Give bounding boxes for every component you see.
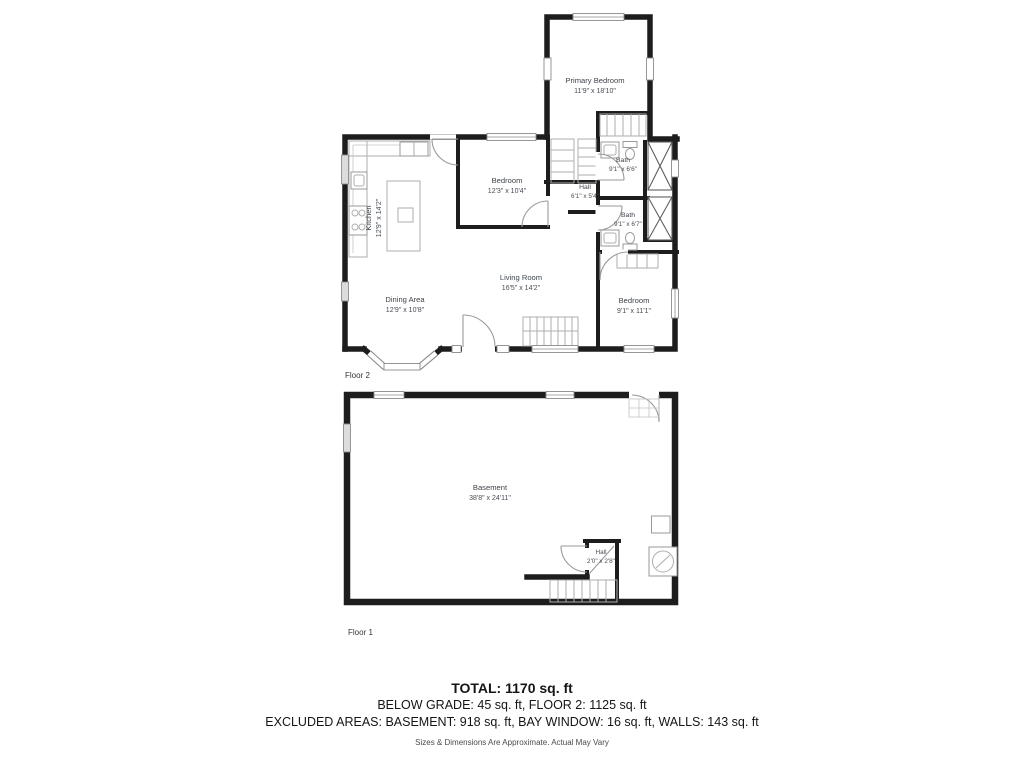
floorplan-drawing: Primary Bedroom 11'9" x 18'10" Bedroom 1… [0, 0, 1024, 768]
kitchen-counter [349, 141, 430, 257]
utility-panel [652, 516, 671, 533]
area-summary: TOTAL: 1170 sq. ft BELOW GRADE: 45 sq. f… [0, 679, 1024, 747]
room-dims-primary-bedroom: 11'9" x 18'10" [574, 88, 616, 95]
room-dims-hall: 6'1" x 5'4" [571, 193, 599, 200]
kitchen-sink [351, 172, 367, 189]
room-label-living: Living Room [500, 273, 542, 282]
room-dims-dining: 12'9" x 10'8" [386, 307, 425, 314]
water-heater [649, 547, 677, 576]
floor2-stairs-main [523, 317, 578, 346]
room-label-basement-hall: Hall [595, 549, 606, 556]
floor1-windows [344, 392, 575, 453]
room-dims-bedroom-right: 9'1" x 11'1" [617, 308, 651, 315]
floor1-doors [561, 391, 659, 573]
bath-lower-fixtures [601, 230, 637, 250]
kitchen-island [387, 181, 420, 251]
room-dims-bedroom-top: 12'3" x 10'4" [488, 188, 527, 195]
room-dims-bath-upper: 9'1" x 6'6" [609, 166, 637, 173]
total-area-text: TOTAL: 1170 sq. ft [0, 679, 1024, 697]
disclaimer-text: Sizes & Dimensions Are Approximate. Actu… [0, 738, 1024, 747]
floor1-stairs [550, 546, 617, 602]
excluded-areas-text: EXCLUDED AREAS: BASEMENT: 918 sq. ft, BA… [0, 714, 1024, 731]
room-label-bedroom-top: Bedroom [492, 176, 523, 185]
room-label-basement: Basement [473, 483, 508, 492]
room-label-hall: Hall [579, 184, 591, 191]
room-label-kitchen: Kitchen [364, 205, 373, 230]
room-dims-basement: 38'8" x 24'11" [469, 495, 511, 502]
floor1-room-labels: Basement 38'8" x 24'11" Hall 2'0" x 2'8" [469, 483, 615, 565]
floor2-plan: Primary Bedroom 11'9" x 18'10" Bedroom 1… [342, 14, 679, 371]
room-label-dining: Dining Area [385, 295, 425, 304]
room-dims-living: 16'5" x 14'2" [502, 285, 541, 292]
refrigerator [400, 142, 428, 156]
room-dims-basement-hall: 2'0" x 2'8" [587, 558, 615, 565]
room-label-primary-bedroom: Primary Bedroom [565, 76, 624, 85]
room-dims-kitchen: 12'9" x 14'2" [376, 198, 383, 237]
room-dims-bath-lower: 9'1" x 6'7" [614, 221, 642, 228]
room-label-bath-lower: Bath [621, 212, 635, 219]
floor1-name: Floor 1 [348, 628, 373, 637]
closet-x-lower [648, 197, 672, 240]
closet-x-upper [648, 142, 672, 190]
floor2-closet-shelves [551, 139, 596, 183]
floor2-name: Floor 2 [345, 371, 370, 380]
floor1-plan: Basement 38'8" x 24'11" Hall 2'0" x 2'8" [344, 391, 678, 603]
bedroom-right-closet [617, 254, 658, 268]
floor1-exterior-walls [347, 395, 675, 602]
below-grade-text: BELOW GRADE: 45 sq. ft, FLOOR 2: 1125 sq… [0, 697, 1024, 714]
room-label-bedroom-right: Bedroom [619, 296, 650, 305]
room-label-bath-upper: Bath [616, 157, 630, 164]
floor2-stairs-upper [600, 114, 646, 136]
floorplan-page: Primary Bedroom 11'9" x 18'10" Bedroom 1… [0, 0, 1024, 768]
